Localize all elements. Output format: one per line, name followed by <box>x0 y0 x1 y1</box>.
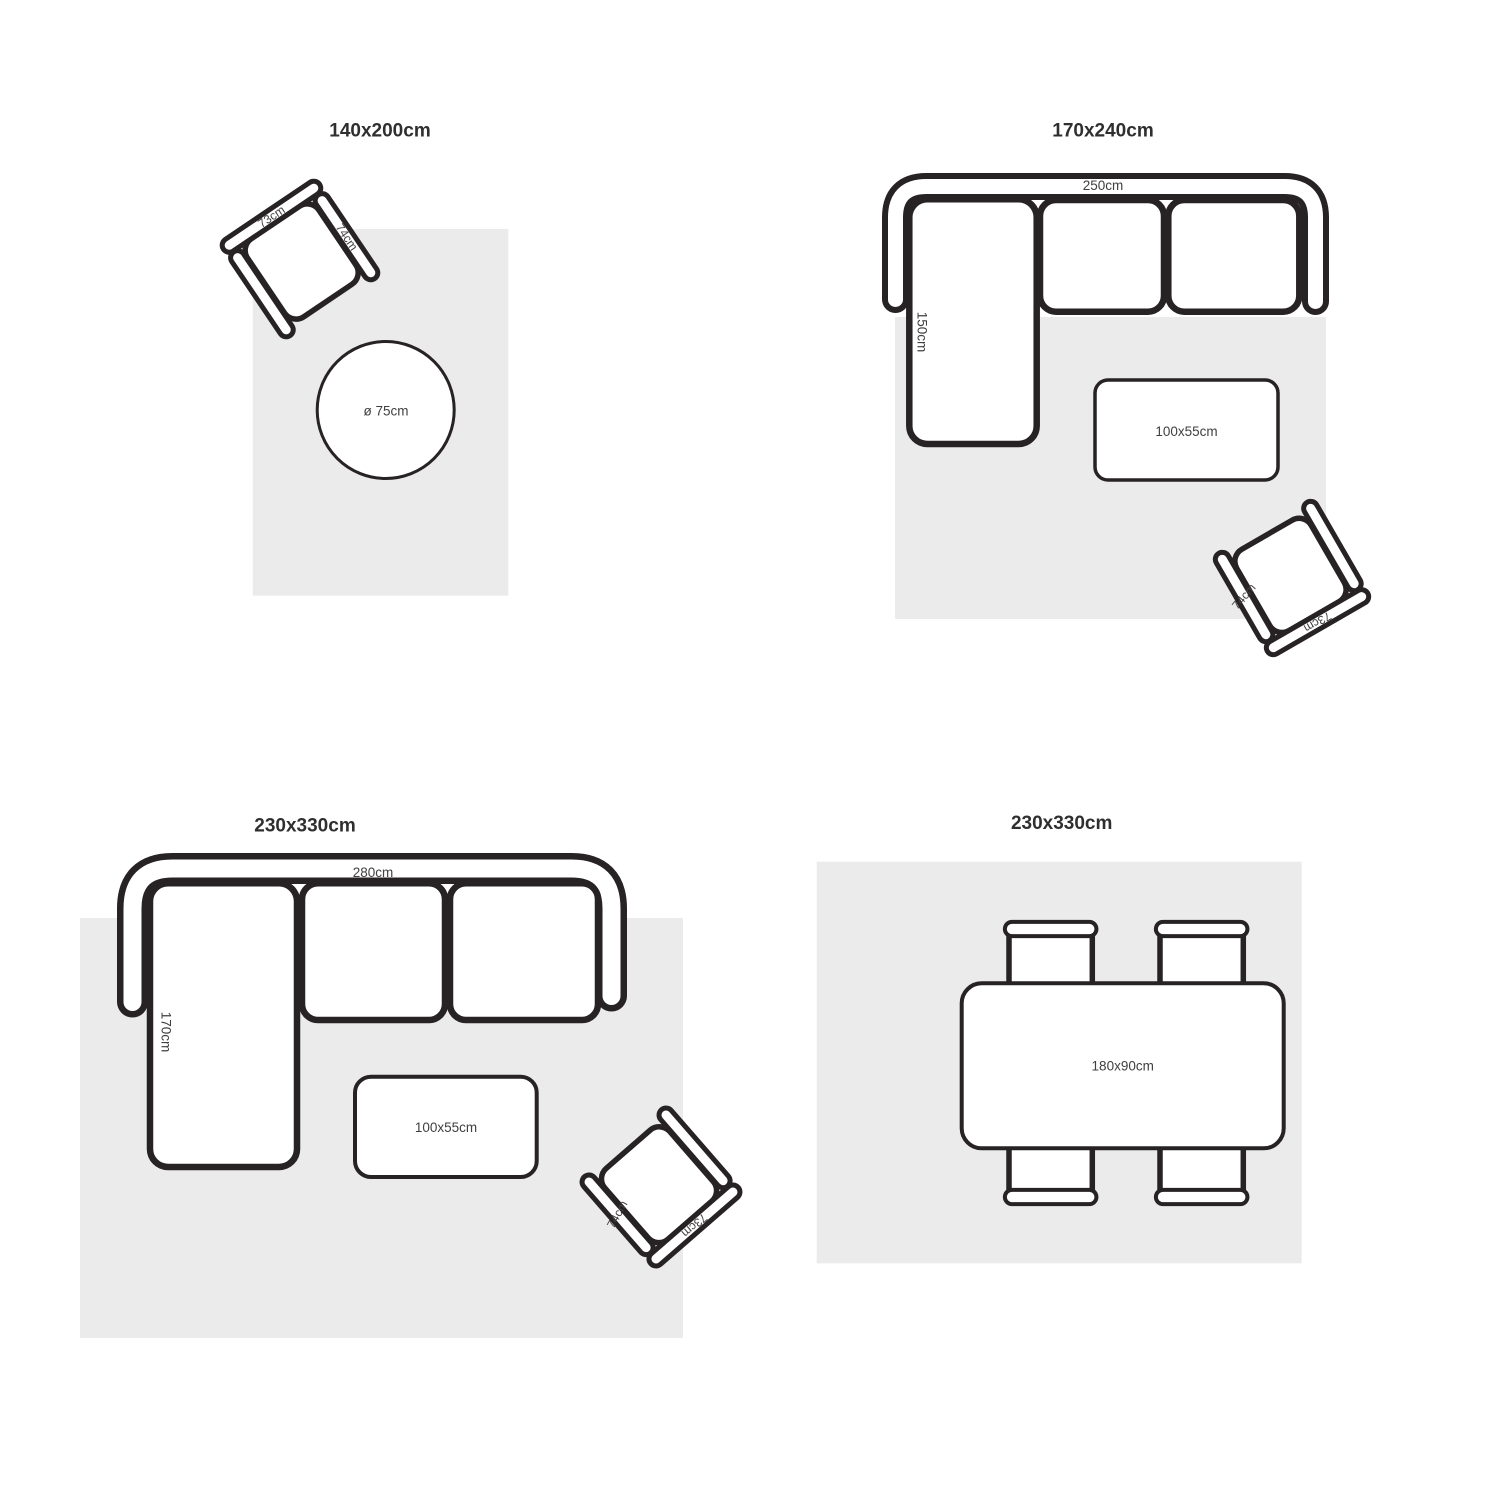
sofa-width-label: 280cm <box>353 865 394 880</box>
sofa-right-cushion <box>1168 200 1299 312</box>
sofa-width-label: 250cm <box>1083 178 1124 193</box>
size-guide-figure: 140x200cm 73cm 74cm ø 75cm 170x240cm 250… <box>0 0 1500 1500</box>
sofa-depth-label: 170cm <box>159 1012 174 1053</box>
sofa-depth-label: 150cm <box>915 312 930 353</box>
panel-170x240: 170x240cm 250cm 150cm 100x55cm 73cm 74cm <box>895 121 1365 662</box>
sofa-middle-cushion <box>1040 200 1164 312</box>
panel-230x330-sofa: 230x330cm 280cm 170cm 100x55cm 73cm 74cm <box>80 815 738 1338</box>
panel-title: 170x240cm <box>1052 121 1153 142</box>
coffee-table-label: 100x55cm <box>1155 424 1217 439</box>
round-table-label: ø 75cm <box>363 404 408 419</box>
sofa-middle-cushion <box>302 883 445 1020</box>
panel-title: 230x330cm <box>254 815 355 836</box>
rug-size-guide: 140x200cm 73cm 74cm ø 75cm 170x240cm 250… <box>0 0 1500 1500</box>
sofa-right-cushion <box>450 883 598 1020</box>
coffee-table-label: 100x55cm <box>415 1120 477 1135</box>
dining-table-label: 180x90cm <box>1092 1058 1154 1073</box>
panel-title: 140x200cm <box>329 121 430 142</box>
panel-140x200: 140x200cm 73cm 74cm ø 75cm <box>225 121 508 596</box>
panel-title: 230x330cm <box>1011 813 1112 834</box>
panel-230x330-dining: 230x330cm 180x90cm <box>817 813 1302 1264</box>
